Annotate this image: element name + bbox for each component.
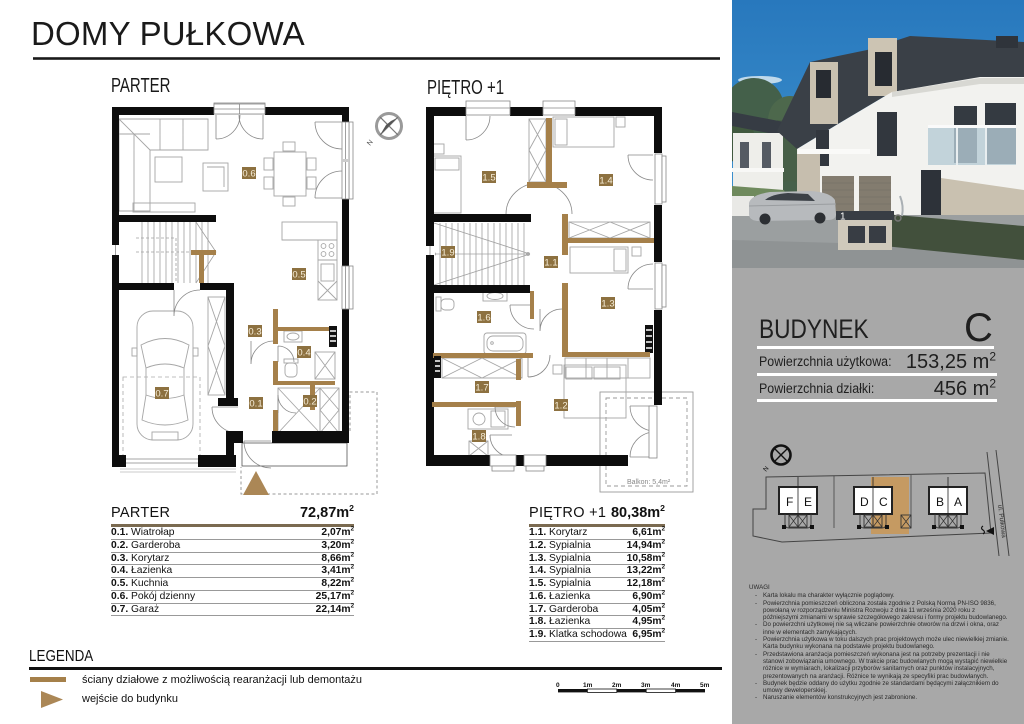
svg-text:0.3: 0.3 [248, 327, 261, 338]
svg-text:0.6: 0.6 [242, 169, 255, 180]
svg-text:1.5: 1.5 [482, 173, 495, 184]
svg-text:E: E [804, 495, 812, 509]
svg-text:2m: 2m [612, 682, 622, 689]
svg-text:0.7: 0.7 [155, 389, 168, 400]
svg-text:0: 0 [556, 682, 560, 689]
svg-text:3m: 3m [641, 682, 651, 689]
svg-text:D: D [860, 495, 869, 509]
svg-text:A: A [954, 495, 962, 509]
svg-text:1m: 1m [583, 682, 593, 689]
svg-text:1.6: 1.6 [477, 313, 490, 324]
svg-text:1.2: 1.2 [554, 401, 567, 412]
svg-text:N: N [762, 465, 771, 473]
svg-text:C: C [879, 495, 888, 509]
svg-text:1: 1 [840, 212, 846, 223]
svg-text:0.1: 0.1 [249, 399, 262, 410]
svg-text:1.3: 1.3 [601, 299, 614, 310]
svg-text:ul. Pułkowa: ul. Pułkowa [996, 504, 1007, 538]
svg-text:0.5: 0.5 [292, 270, 305, 281]
svg-text:0.4: 0.4 [297, 348, 310, 359]
svg-text:5m: 5m [700, 682, 710, 689]
svg-text:F: F [786, 495, 793, 509]
svg-text:Balkon: 5,4m²: Balkon: 5,4m² [627, 479, 671, 486]
svg-text:4m: 4m [671, 682, 681, 689]
svg-text:N: N [366, 139, 375, 147]
svg-text:1.4: 1.4 [599, 176, 612, 187]
svg-text:0.2: 0.2 [303, 397, 316, 408]
svg-text:1.1: 1.1 [544, 258, 557, 269]
svg-text:B: B [936, 495, 944, 509]
svg-text:1.8: 1.8 [472, 432, 485, 443]
svg-text:1.7: 1.7 [475, 383, 488, 394]
svg-text:1.9: 1.9 [441, 248, 454, 259]
